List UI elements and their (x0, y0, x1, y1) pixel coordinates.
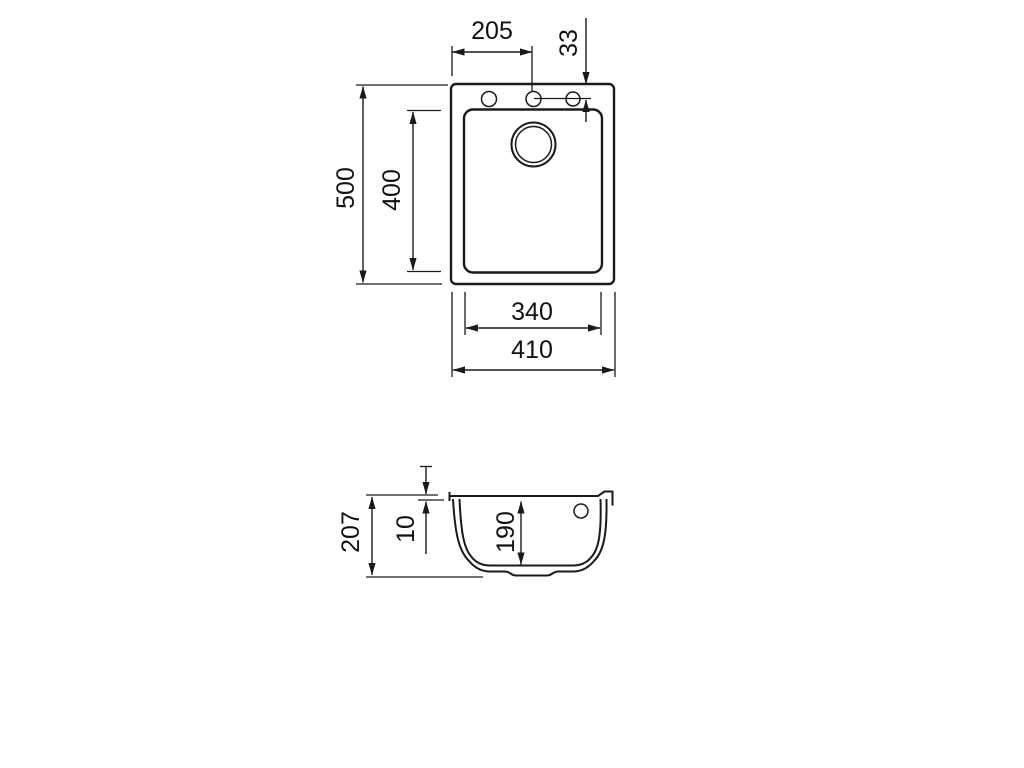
label-207-group: 207 (337, 511, 365, 553)
label-400-group: 400 (378, 169, 406, 211)
label-33-group: 33 (555, 29, 583, 57)
label-190: 190 (492, 511, 520, 553)
section-view (450, 492, 613, 576)
top-view-dimensions: 205 33 500 400 340 (332, 17, 615, 377)
sink-technical-drawing: 205 33 500 400 340 (0, 0, 1024, 768)
label-33: 33 (555, 29, 583, 57)
section-inner-bowl (460, 499, 601, 566)
label-10: 10 (392, 515, 420, 543)
section-view-dimensions: 207 10 190 (337, 467, 521, 578)
drain-outer-circle (512, 123, 556, 167)
label-500: 500 (332, 167, 360, 209)
sink-technical-drawing-page: 205 33 500 400 340 (0, 0, 1024, 768)
label-10-group: 10 (392, 515, 420, 543)
top-view (451, 84, 614, 284)
faucet-hole-left (482, 92, 497, 107)
label-205: 205 (471, 17, 513, 45)
sink-bowl-outline (464, 110, 602, 273)
label-207: 207 (337, 511, 365, 553)
sink-outer-outline (451, 84, 614, 284)
label-400: 400 (378, 169, 406, 211)
drain-inner-circle (516, 127, 552, 163)
label-340: 340 (511, 298, 553, 326)
label-410: 410 (511, 336, 553, 364)
section-rim-profile (450, 492, 613, 506)
label-500-group: 500 (332, 167, 360, 209)
overflow-hole (574, 504, 588, 518)
label-190-group: 190 (492, 511, 520, 553)
